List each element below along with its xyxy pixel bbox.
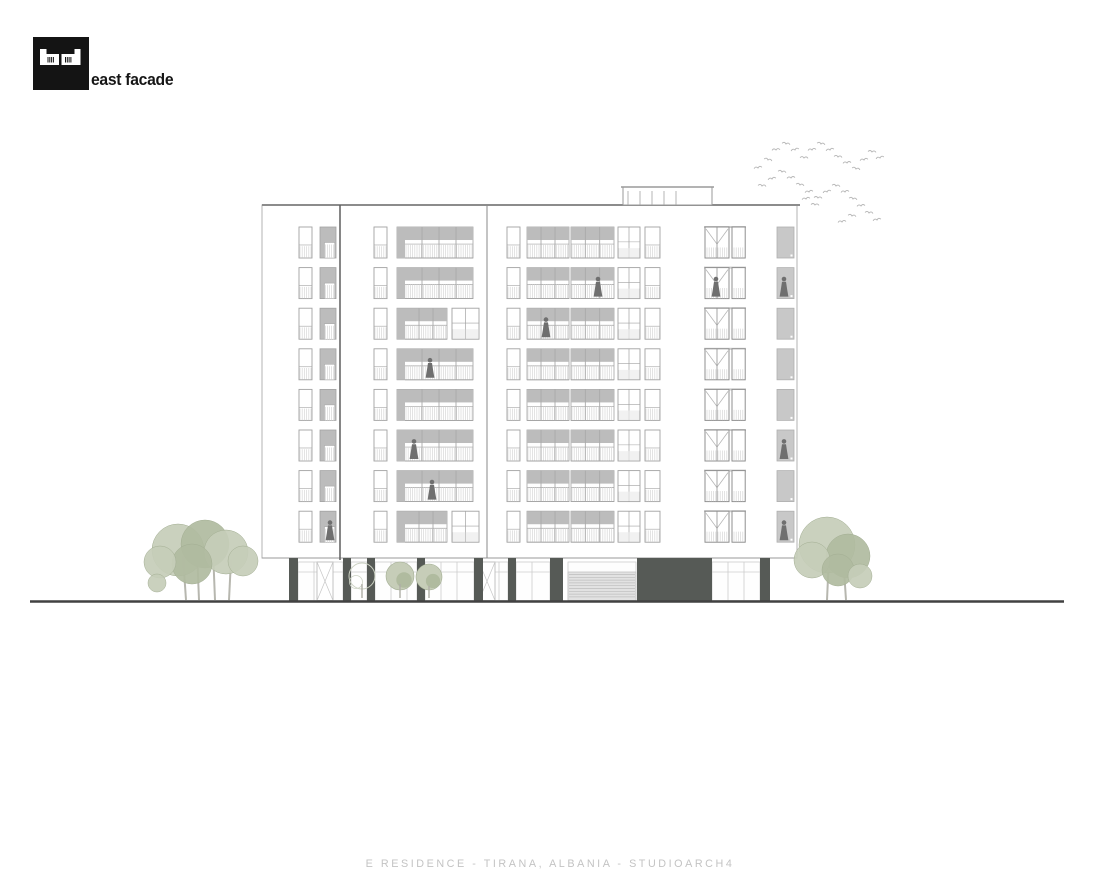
elevation-sheet: east facade E RESIDENCE - TIRANA, ALBANI… xyxy=(0,0,1100,888)
project-caption: E RESIDENCE - TIRANA, ALBANIA - STUDIOAR… xyxy=(11,858,1089,870)
east-facade-elevation-svg xyxy=(0,0,1100,888)
elevation-drawing xyxy=(0,0,1100,888)
